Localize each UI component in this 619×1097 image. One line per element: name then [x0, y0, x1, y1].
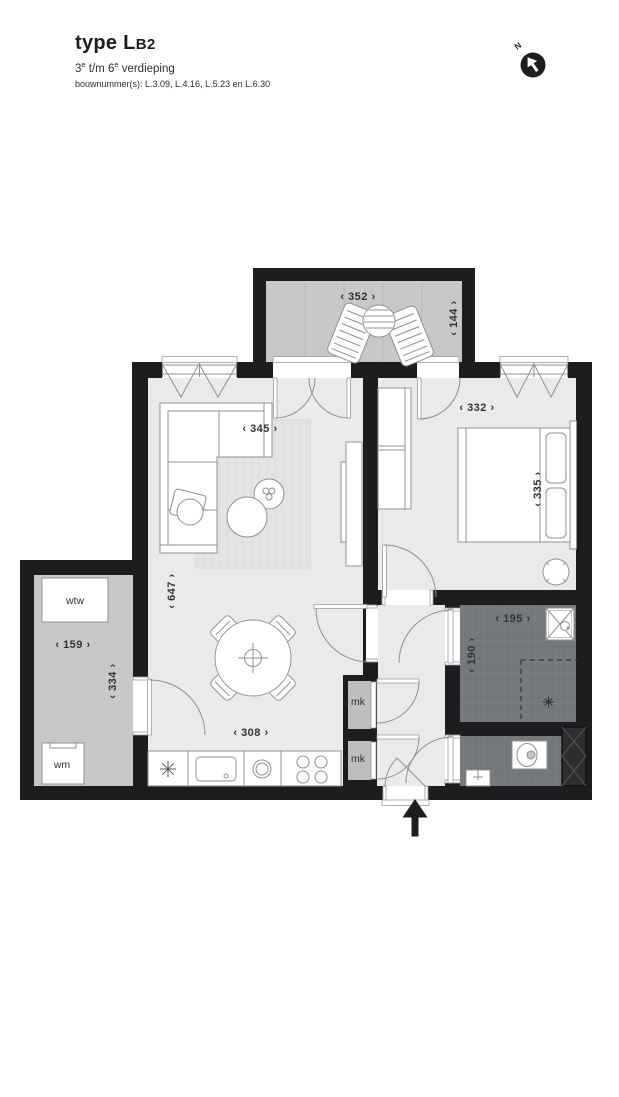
- mk-lower-door: [371, 742, 376, 779]
- pillow: [546, 488, 566, 538]
- wardrobe: [378, 388, 411, 509]
- plan-type-suffix: B2: [136, 36, 156, 53]
- dim-balcony-width: ‹ 352 ›: [340, 291, 375, 303]
- kitchen-sink: [196, 757, 236, 781]
- dim-balcony-depth: ‹ 144 ›: [448, 300, 460, 335]
- hand-basin: [466, 770, 490, 786]
- dim-tech-depth: ‹ 334 ›: [107, 663, 119, 698]
- dining-table: [215, 620, 291, 696]
- dim-tech-width: ‹ 159 ›: [55, 639, 90, 651]
- floorplan-svg: ‹ 352 › ‹ 144 › ‹ 345 › ‹ 332 › ‹ 335 › …: [0, 0, 619, 1092]
- pillow: [546, 433, 566, 483]
- dim-living-depth: ‹ 647 ›: [166, 573, 178, 608]
- kitchen-counter: [148, 751, 341, 786]
- mk-upper-door: [371, 682, 376, 728]
- bed: [458, 421, 577, 549]
- north-arrow-icon: N: [512, 40, 545, 78]
- shower: [546, 608, 574, 640]
- balcony-table: [363, 305, 395, 337]
- north-label: N: [512, 40, 523, 52]
- dim-bathroom-depth: ‹ 190 ›: [466, 637, 478, 672]
- dim-kitchen-width: ‹ 308 ›: [233, 727, 268, 739]
- floors-line: 3e t/m 6e verdieping: [75, 60, 270, 75]
- bouwnummers-line: bouwnummer(s): L.3.09, L.4.16, L.5.23 en…: [75, 79, 270, 89]
- entrance-sill: [382, 800, 429, 806]
- headboard: [570, 421, 577, 549]
- shaft: [562, 727, 586, 786]
- dim-bedroom-width: ‹ 332 ›: [459, 402, 494, 414]
- floorplan-page: { "header": { "type_prefix": "type L", "…: [0, 0, 619, 1092]
- bedroom-stool: [543, 559, 569, 585]
- dim-living-width: ‹ 345 ›: [242, 423, 277, 435]
- boiler-symbol: [160, 761, 176, 777]
- label-mk-upper: mk: [351, 696, 366, 708]
- toilet: [512, 741, 547, 769]
- label-wm: wm: [53, 759, 71, 771]
- plan-type-prefix: type L: [75, 32, 136, 54]
- label-wtw: wtw: [65, 595, 85, 607]
- plan-type-title: type LB2: [75, 32, 270, 55]
- hall-floor: [377, 605, 445, 786]
- dim-bedroom-depth: ‹ 335 ›: [532, 471, 544, 506]
- title-block: type LB2 3e t/m 6e verdieping bouwnummer…: [75, 32, 270, 89]
- dim-bathroom-width: ‹ 195 ›: [495, 613, 530, 625]
- label-mk-lower: mk: [351, 753, 366, 765]
